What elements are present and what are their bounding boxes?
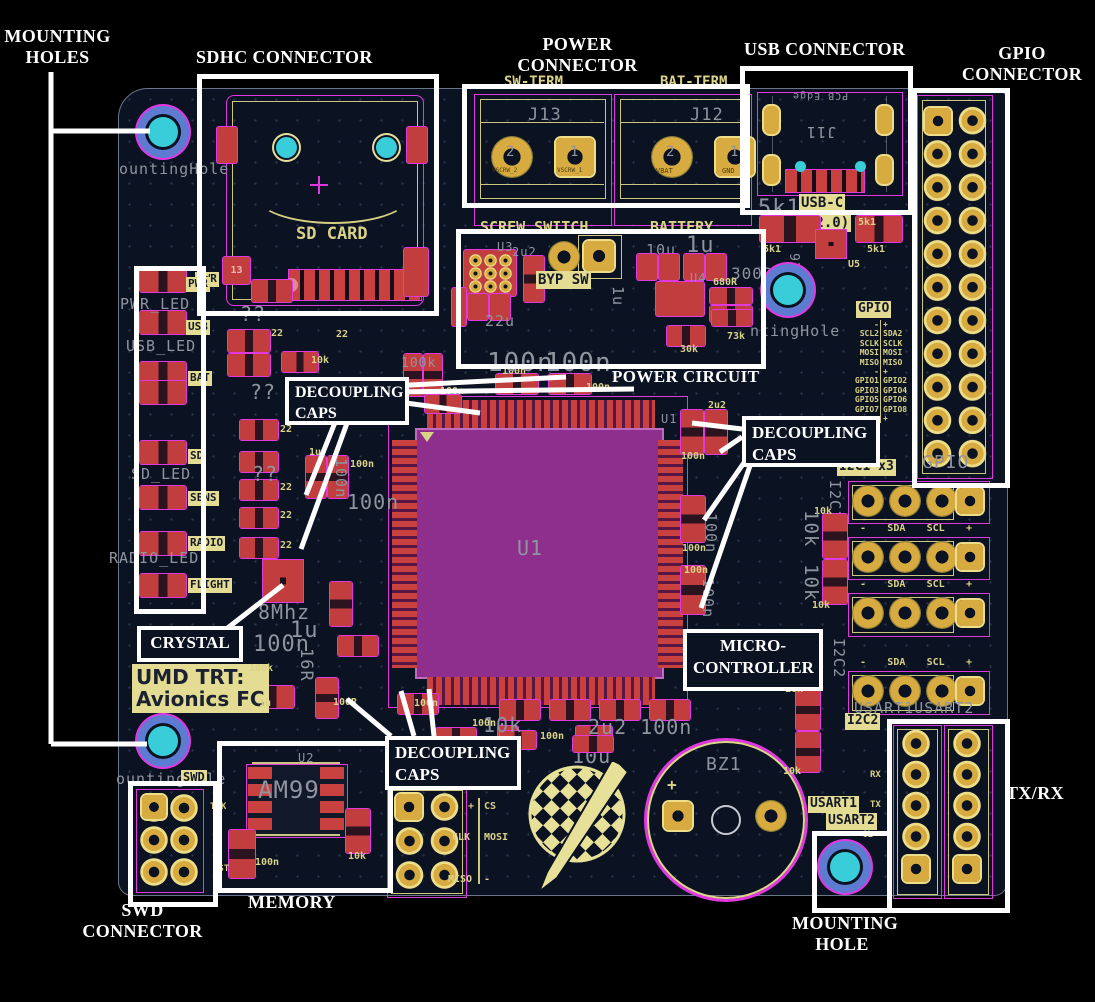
callout-line2: CONTROLLER [693, 657, 813, 679]
gpio-row-r: MOSI [879, 348, 910, 357]
value-label: 22 [280, 541, 292, 551]
gpio-row-l: MOSI [852, 348, 879, 357]
mounting-hole [148, 726, 178, 756]
callout-line1: MICRO- [693, 635, 813, 657]
buzzer-center-hole [711, 805, 741, 835]
callout-line1: DECOUPLING [752, 422, 870, 444]
u1-pins-top [427, 400, 655, 428]
i2c-pin-labels: -SDASCL+ [860, 524, 972, 534]
gpio-row-r: SDA2 [879, 329, 910, 338]
spi-cs: CS [484, 802, 496, 812]
value-label: 100n [472, 719, 496, 729]
gpio-region-box [912, 88, 1010, 488]
brand-line1: UMD TRT: [136, 666, 265, 688]
value-label: 1u [259, 699, 271, 709]
value-label: 1u [309, 448, 321, 458]
spi-label-divider [478, 798, 480, 884]
capacitor [338, 636, 378, 656]
mounting-hole [773, 275, 803, 305]
resistor-5k1 [760, 216, 820, 242]
i2c-scl: SCL [927, 524, 945, 534]
brand-line2: Avionics FC [136, 688, 265, 710]
decoupling-caps-callout-2: DECOUPLING CAPS [742, 416, 880, 467]
gpio-row-l: - [852, 320, 879, 329]
resistor [228, 330, 270, 352]
i2c-pad1 [957, 600, 983, 626]
memory-label: MEMORY [248, 892, 336, 913]
u5-ref: U5 [848, 260, 860, 270]
value-label: 100n [540, 732, 564, 742]
i2c-pad [853, 542, 883, 572]
crystal-callout: CRYSTAL [137, 626, 243, 662]
i2c-pin-labels: -SDASCL+ [860, 580, 972, 590]
resistor-10k [823, 514, 847, 558]
callout-line1: DECOUPLING [395, 742, 511, 764]
i2c-scl: SCL [927, 580, 945, 590]
gpio-silk-label: GPIO [856, 301, 891, 318]
label-line2: CONNECTOR [80, 921, 205, 942]
resistor [240, 538, 278, 558]
capacitor [550, 700, 590, 720]
label-line1: POWER [510, 34, 645, 55]
usart-gray-text: USART1USART2 [854, 701, 974, 716]
value-label: 100n [347, 492, 399, 512]
swd-region-box [128, 781, 218, 907]
gpio-row-r: SCLK [879, 339, 910, 348]
capacitor [705, 410, 727, 454]
resistor [240, 420, 278, 440]
sdhc-region-box [197, 74, 439, 316]
callout-line2: CAPS [752, 444, 870, 466]
gpio-row-l: GPIO3 [852, 386, 879, 395]
label-line2: HOLE [792, 934, 892, 955]
i2c-plus: + [966, 524, 972, 534]
decoupling-caps-callout-1: DECOUPLING CAPS [285, 377, 409, 425]
value-label: 100n [681, 452, 705, 462]
i2c-pad [853, 486, 883, 516]
u1-ref: U1 [517, 538, 543, 558]
value-label: 22 [280, 425, 292, 435]
i2c-minus: - [860, 658, 866, 668]
value-label: 10k [311, 356, 329, 366]
value-label: 100k [249, 664, 273, 674]
i2c-minus: - [860, 580, 866, 590]
i2c-scl: SCL [927, 658, 945, 668]
i2c-pad1 [957, 488, 983, 514]
value-label: 22 [271, 329, 283, 339]
value-label: 10k [801, 564, 820, 601]
power-circuit-label: POWER CIRCUIT [612, 367, 759, 387]
txrx-label: TX/RX [1006, 783, 1064, 804]
decoupling-caps-callout-3: DECOUPLING CAPS [385, 736, 521, 790]
gpio-row-r: GPIO8 [879, 405, 910, 414]
i2c-pad [890, 542, 920, 572]
spi-plus: + [468, 802, 474, 812]
i2c-pad [853, 598, 883, 628]
gpio-row-l: - [852, 367, 879, 376]
txrx-region-box [887, 719, 1010, 913]
i2c-pad [927, 598, 957, 628]
gpio-row-r: GPIO4 [879, 386, 910, 395]
spi-clk: CLK [452, 833, 470, 843]
memory-region-box [217, 741, 393, 893]
i2c2-vertical-text: I2C2 [831, 638, 846, 678]
usb-connector-label: USB CONNECTOR [744, 39, 905, 60]
rx-label: RX [870, 771, 881, 780]
u1-pins-right [658, 440, 683, 668]
i2c-pad [890, 598, 920, 628]
value-label: ?? [252, 464, 278, 484]
i2c-pad1 [957, 544, 983, 570]
i2c-pad [927, 542, 957, 572]
value-label: 8Mhz [258, 602, 310, 622]
value-label: 100n [586, 383, 610, 393]
mounting-hole [148, 117, 178, 147]
label-line1: MOUNTING [792, 913, 892, 934]
value-label: 5k1 [858, 218, 876, 228]
resistor [228, 354, 270, 376]
value-label: 100n [703, 513, 718, 553]
buzzer-pad2 [756, 801, 786, 831]
value-label: 100k [401, 357, 436, 370]
gpio-row-r: GPIO2 [879, 376, 910, 385]
gpio-row-r: + [879, 367, 910, 376]
resistor [240, 508, 278, 528]
swd-connector-label: SWD CONNECTOR [80, 900, 205, 942]
power-region-box [462, 84, 750, 208]
value-label: 100n [333, 458, 348, 498]
gpio-row-l: SCL2 [852, 329, 879, 338]
label-line1: SWD [80, 900, 205, 921]
mounting-hole-box [812, 831, 892, 913]
u1-ref-small: U1 [661, 413, 677, 425]
gpio-row-l: GPIO5 [852, 395, 879, 404]
usart1-label: USART1 [808, 796, 859, 813]
i2c-minus: - [860, 524, 866, 534]
value-label: 22 [336, 330, 348, 340]
value-label: 16R [297, 648, 314, 682]
power-circuit-box [456, 229, 766, 369]
i2c-sda: SDA [887, 524, 905, 534]
i2c-plus: + [966, 658, 972, 668]
spi-minus: - [484, 875, 490, 885]
i2c-pad [890, 486, 920, 516]
resistor-10k [823, 560, 847, 604]
buzzer-pad1 [664, 802, 692, 830]
u1-pin1-marker [420, 432, 434, 442]
value-label: 2u2 100n [588, 717, 692, 737]
resistor-10k [796, 690, 820, 730]
label-line2: CONNECTOR [956, 64, 1088, 85]
value-label: 100n [440, 387, 464, 397]
usb-region-box [740, 66, 913, 215]
u5-part [816, 230, 846, 258]
umd-logo [525, 762, 637, 894]
value-label: 10k [801, 510, 820, 547]
u1-pins-left [392, 440, 417, 668]
capacitor [681, 410, 703, 454]
crystal-part [263, 560, 303, 602]
callout-line2: CAPS [395, 764, 511, 786]
gpio-row-l: SCLK [852, 339, 879, 348]
gpio-connector-label: GPIO CONNECTOR [956, 43, 1088, 85]
label-line1: MOUNTING [0, 26, 115, 47]
tx-label: TX [870, 801, 881, 810]
value-label: 10k [783, 767, 801, 777]
value-label: 100n [414, 699, 438, 709]
value-label: 2u2 [708, 401, 726, 411]
value-label: 22 [280, 511, 292, 521]
buzzer-ref: BZ1 [706, 756, 742, 774]
spi-mosi: MOSI [484, 833, 508, 843]
capacitor [330, 582, 352, 626]
capacitor [425, 395, 461, 413]
sdhc-label: SDHC CONNECTOR [196, 47, 373, 68]
gpio-pin-table: -+ SCL2SDA2 SCLKSCLK MOSIMOSI MISOMISO -… [852, 320, 912, 423]
buzzer-plus: + [667, 777, 677, 793]
gpio-row-l: MISO [852, 358, 879, 367]
i2c-sda: SDA [887, 658, 905, 668]
i2c-pad [927, 486, 957, 516]
i2c-sda: SDA [887, 580, 905, 590]
callout-line1: CRYSTAL [147, 632, 233, 654]
value-label: ?? [250, 382, 276, 402]
spi-pin1 [396, 794, 422, 820]
value-label: 100n [684, 566, 708, 576]
usart2-label: USART2 [826, 813, 877, 830]
gpio-row-r: + [879, 414, 910, 423]
led-region-box [134, 266, 206, 614]
mounting-holes-label: MOUNTING HOLES [0, 26, 115, 68]
callout-line1: DECOUPLING [295, 383, 399, 404]
gpio-row-l: GPIO7 [852, 405, 879, 414]
mounting-hole-label: MOUNTING HOLE [792, 913, 892, 955]
i2c-plus: + [966, 580, 972, 590]
callout-line2: CAPS [295, 404, 399, 425]
power-connector-label: POWER CONNECTOR [510, 34, 645, 76]
label-line2: CONNECTOR [510, 55, 645, 76]
value-label: 5k1 [867, 245, 885, 255]
microcontroller-callout: MICRO- CONTROLLER [683, 629, 823, 691]
capacitor [306, 456, 326, 498]
value-label: 22 [280, 483, 292, 493]
gpio-row-r: GPIO6 [879, 395, 910, 404]
gpio-row-r: MISO [879, 358, 910, 367]
value-label: 100R [333, 698, 357, 708]
value-label: 100n [700, 578, 715, 618]
label-line1: GPIO [956, 43, 1088, 64]
i2c-pin-labels: -SDASCL+ [860, 658, 972, 668]
value-label: 100n [350, 460, 374, 470]
label-line2: HOLES [0, 47, 115, 68]
spi-miso: MISO [448, 875, 472, 885]
gpio-row-r: + [879, 320, 910, 329]
value-label: 10k [812, 601, 830, 611]
gpio-row-l: GPIO1 [852, 376, 879, 385]
